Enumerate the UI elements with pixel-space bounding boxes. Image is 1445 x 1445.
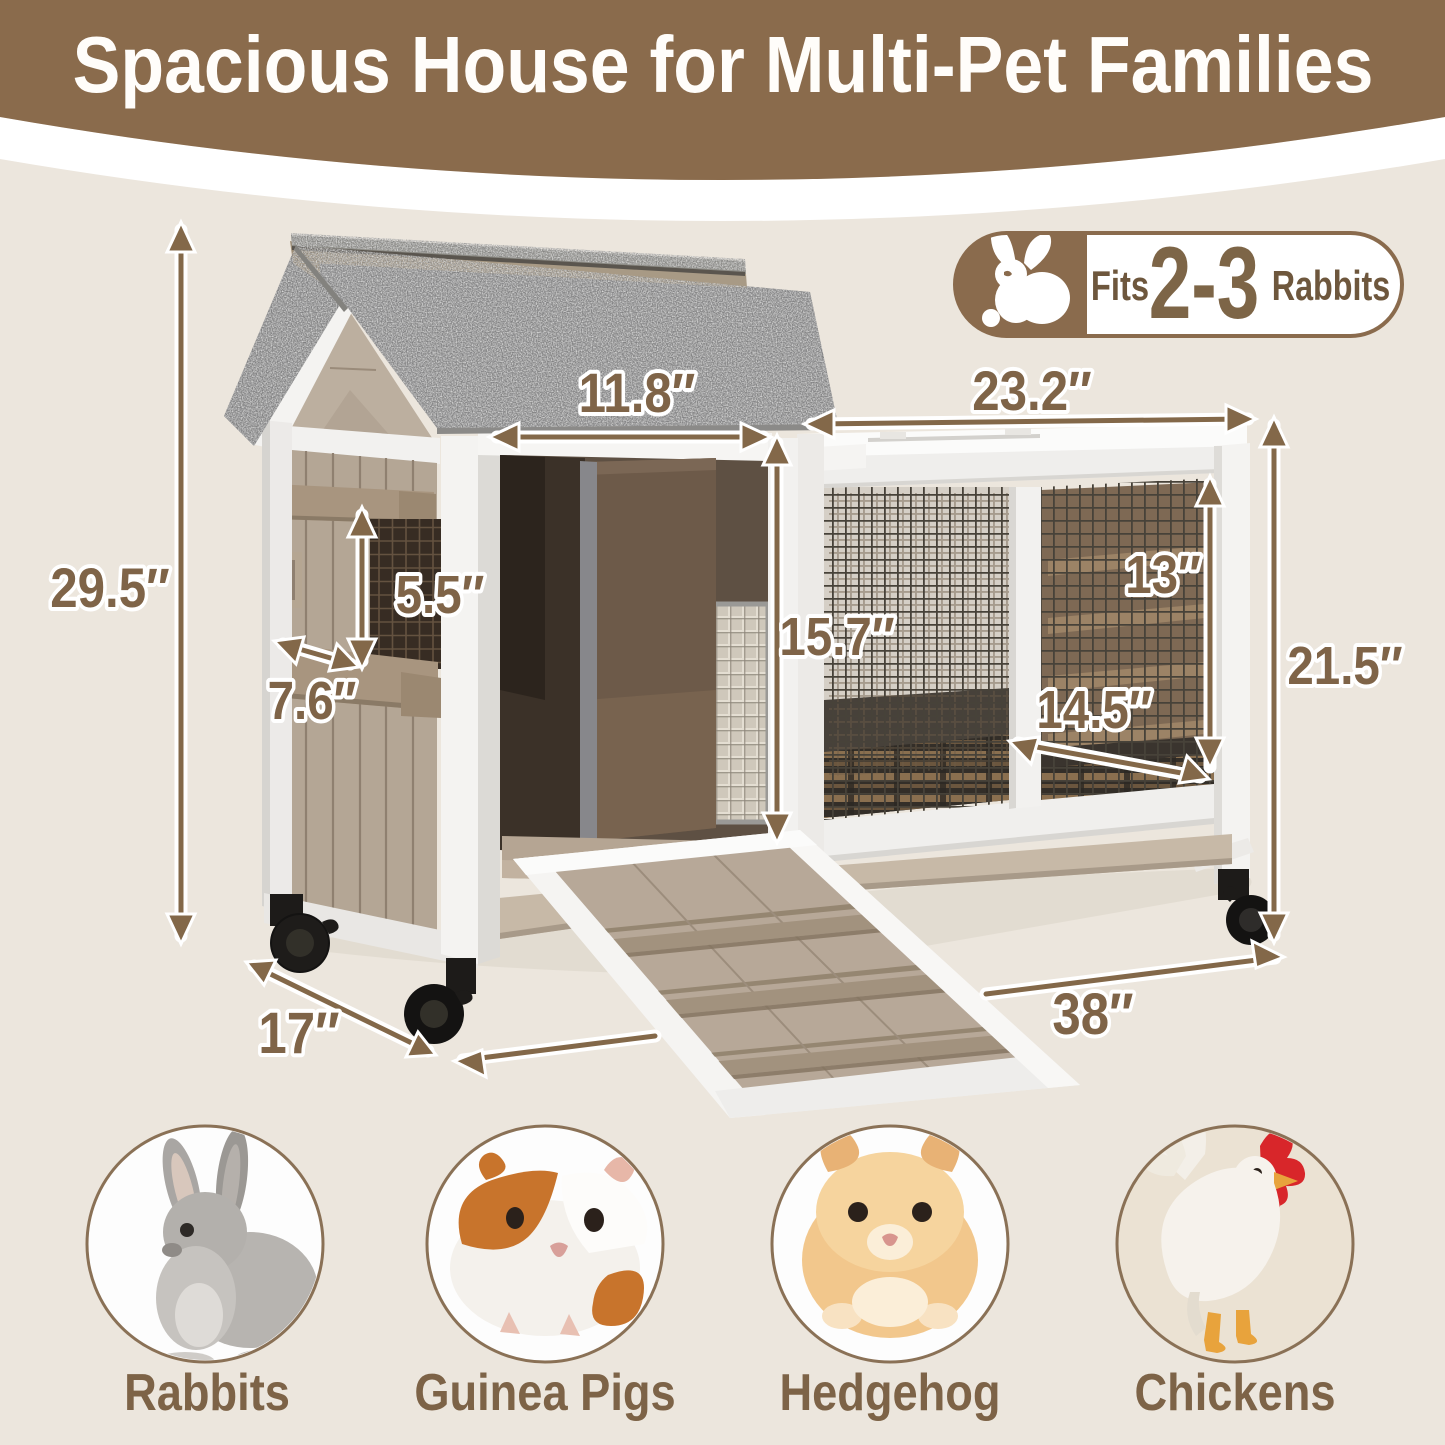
svg-text:11.8″: 11.8″ [579, 362, 696, 425]
svg-text:Fits: Fits [1091, 262, 1149, 309]
svg-text:29.5″: 29.5″ [50, 557, 169, 620]
svg-text:Spacious House for Multi-Pet F: Spacious House for Multi-Pet Families [73, 20, 1374, 110]
svg-text:15.7″: 15.7″ [779, 606, 894, 667]
svg-text:Rabbits: Rabbits [1272, 262, 1391, 309]
svg-text:Guinea Pigs: Guinea Pigs [414, 1364, 675, 1422]
svg-text:Hedgehog: Hedgehog [779, 1364, 1000, 1422]
svg-text:Chickens: Chickens [1134, 1364, 1335, 1422]
svg-text:5.5″: 5.5″ [396, 564, 485, 625]
svg-text:38″: 38″ [1052, 982, 1133, 1047]
svg-text:23.2″: 23.2″ [972, 360, 1091, 423]
svg-text:17″: 17″ [258, 1001, 339, 1066]
svg-text:21.5″: 21.5″ [1287, 635, 1402, 696]
svg-text:14.5″: 14.5″ [1036, 679, 1151, 740]
svg-text:7.6″: 7.6″ [268, 670, 357, 731]
svg-text:13″: 13″ [1125, 544, 1201, 605]
svg-text:Rabbits: Rabbits [124, 1364, 290, 1422]
svg-text:2-3: 2-3 [1149, 226, 1260, 340]
